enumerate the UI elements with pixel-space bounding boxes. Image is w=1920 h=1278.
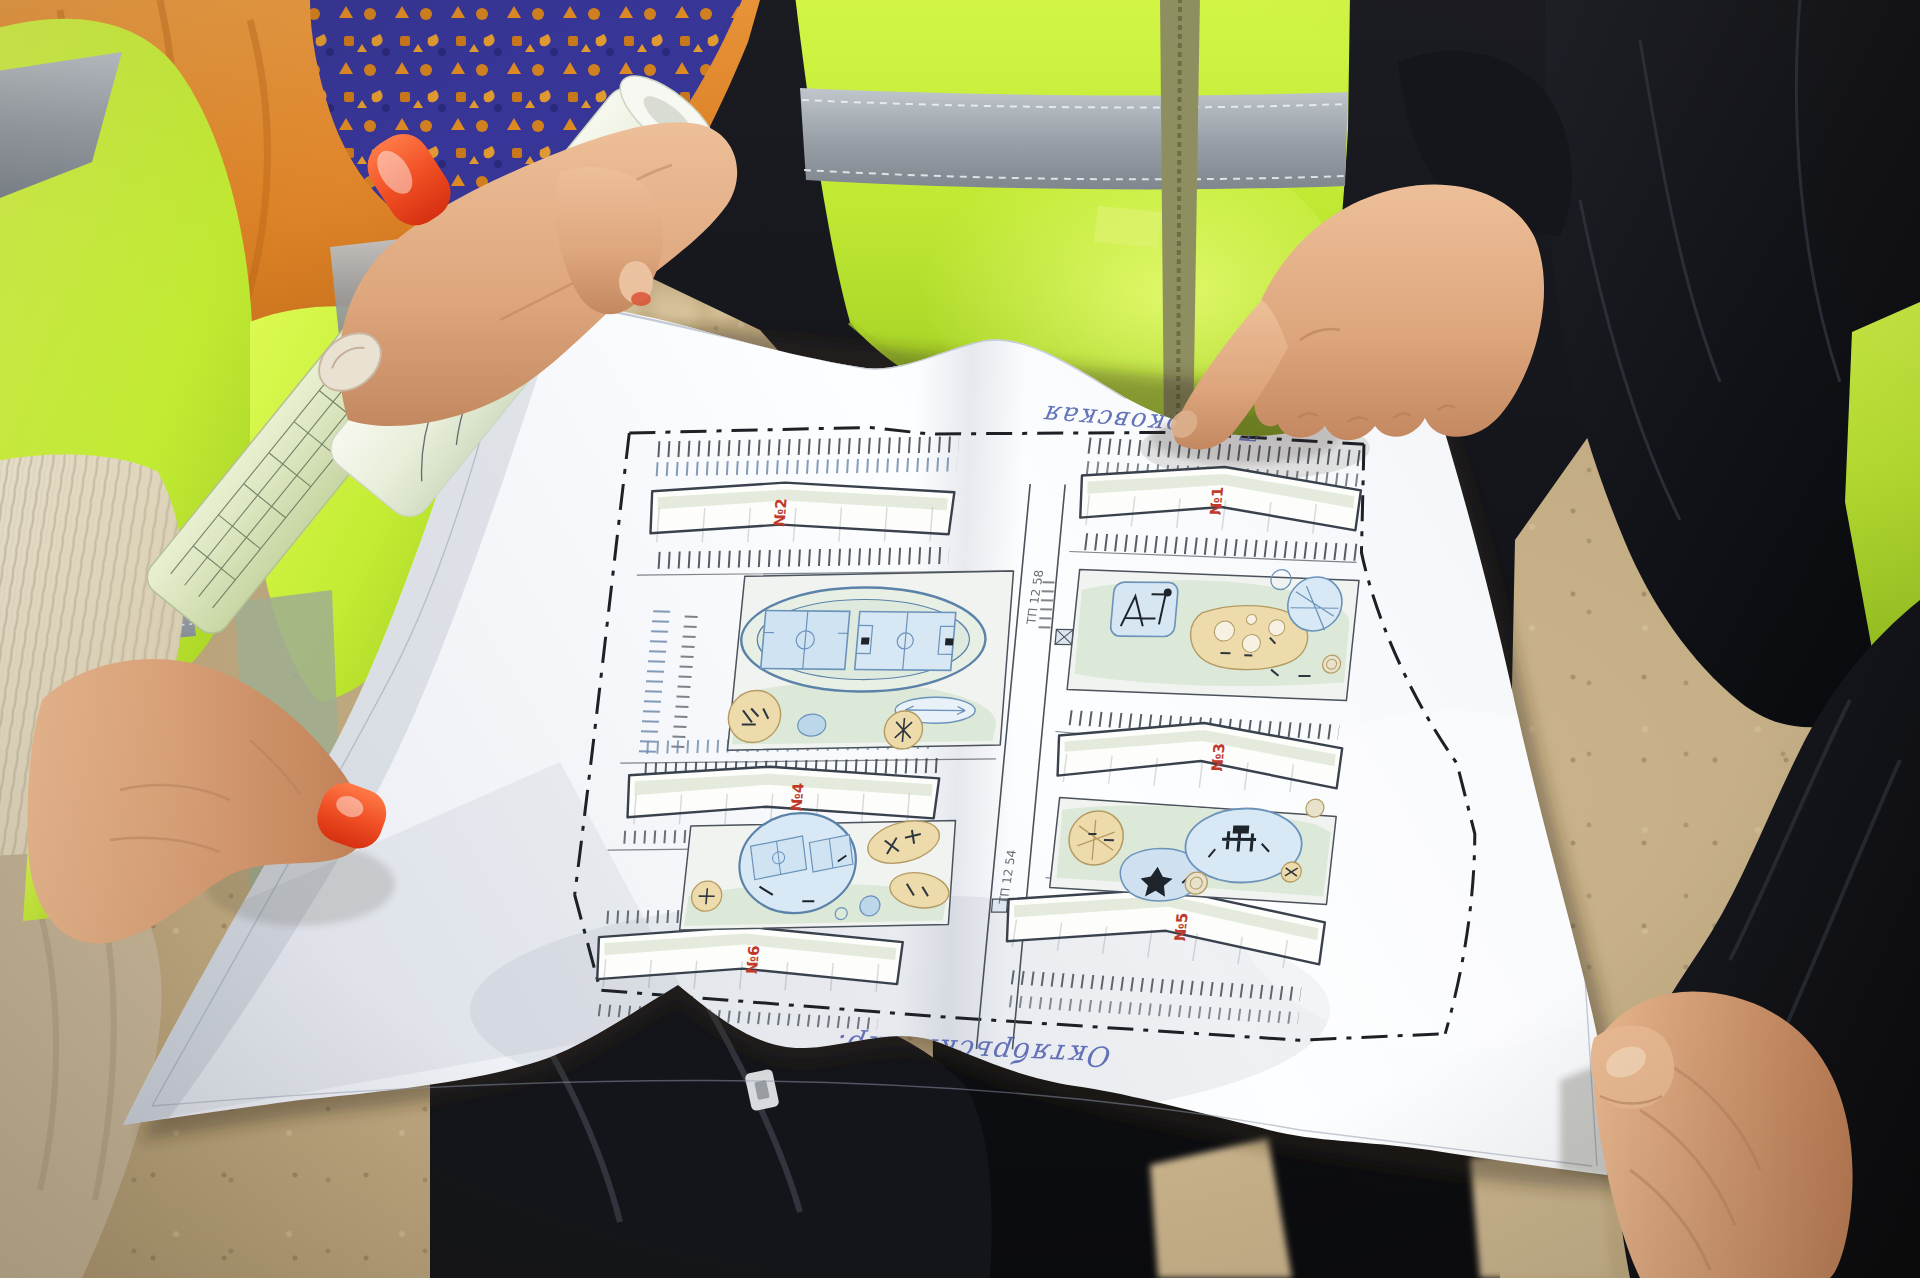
label-building-1: №1 — [1207, 487, 1227, 516]
photo-foreground: №1 №2 №3 №4 №5 №6 ТП 12 58 ТП 12 54 Тент… — [0, 0, 1920, 1278]
label-building-4: №4 — [787, 783, 807, 812]
label-building-6: №6 — [743, 945, 763, 974]
finger-nail-polish-chip — [631, 292, 651, 306]
label-building-5: №5 — [1171, 913, 1191, 942]
courtyard-playgrounds-ne — [1066, 568, 1359, 701]
courtyard-sports-stadium — [725, 568, 1015, 753]
courtyard-rink-sw — [680, 812, 959, 933]
label-building-2: №2 — [770, 498, 790, 527]
left-hand-holding-paper — [28, 659, 395, 944]
label-building-3: №3 — [1208, 743, 1228, 772]
construction-site-photo: №1 №2 №3 №4 №5 №6 ТП 12 58 ТП 12 54 Тент… — [0, 0, 1920, 1278]
vest-zipper-teeth — [1178, 0, 1180, 432]
vest-velcro-tab — [1094, 206, 1162, 248]
